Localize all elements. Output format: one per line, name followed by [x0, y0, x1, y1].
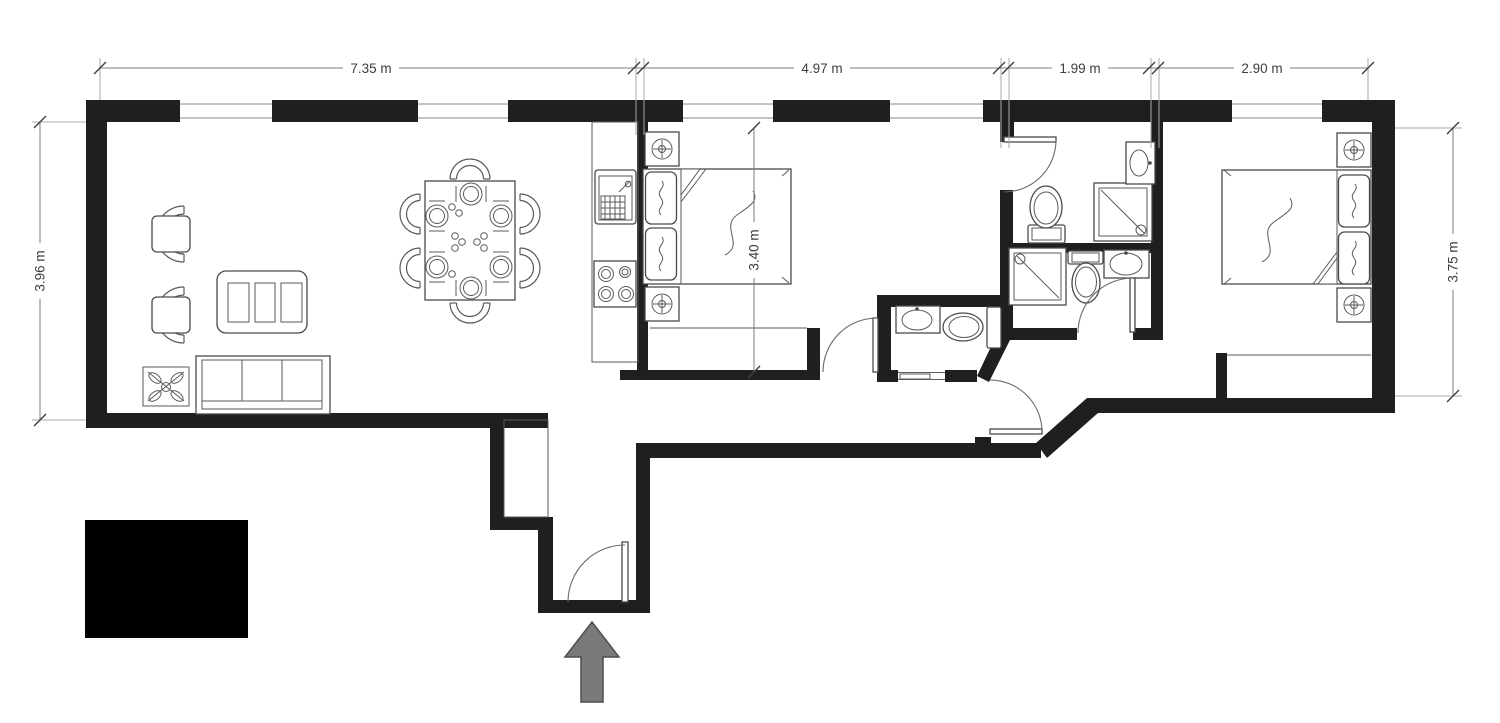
entrance-arrow-icon	[565, 622, 619, 702]
window	[418, 104, 508, 118]
living-room	[143, 159, 540, 414]
armchair	[152, 206, 190, 262]
bathroom-2	[1009, 248, 1149, 333]
kitchen-sink	[595, 170, 636, 224]
dim-top-3-label: 1.99 m	[1059, 61, 1100, 76]
bathroom-1-door	[1004, 137, 1056, 192]
stove	[594, 261, 636, 307]
bedroom-2	[1222, 133, 1371, 355]
plant	[143, 367, 189, 406]
window	[683, 104, 773, 118]
window	[1232, 104, 1322, 118]
floor-plan-canvas: 7.35 m 4.97 m 1.99 m 2.90 m 3.96 m 3.40 …	[0, 0, 1500, 723]
floor-plan-page: 7.35 m 4.97 m 1.99 m 2.90 m 3.96 m 3.40 …	[0, 0, 1500, 723]
coffee-table	[217, 271, 307, 333]
nightstand-lamp	[645, 132, 679, 166]
entry	[565, 542, 628, 702]
dim-top-1-label: 7.35 m	[350, 61, 391, 76]
shower	[1009, 248, 1066, 305]
dim-top-4-label: 2.90 m	[1241, 61, 1282, 76]
shaft	[504, 420, 548, 517]
nightstand-lamp	[1337, 288, 1371, 322]
nightstand-lamp	[1337, 133, 1371, 167]
double-bed	[643, 169, 791, 284]
hallway-door	[990, 380, 1042, 434]
bedroom-1-door	[823, 318, 878, 372]
sofa	[196, 356, 330, 414]
kitchen	[592, 122, 638, 362]
exterior-wall-right	[1372, 100, 1395, 413]
bathroom-1	[1004, 137, 1155, 243]
double-bed	[1222, 170, 1371, 284]
nightstand-lamp	[645, 287, 679, 321]
exterior-wall-left	[86, 100, 107, 428]
washbasin	[1126, 142, 1155, 184]
window	[180, 104, 272, 118]
dim-top-2-label: 4.97 m	[801, 61, 842, 76]
toilet	[1068, 251, 1103, 303]
window	[890, 104, 983, 118]
redaction-block	[85, 520, 248, 638]
dim-bedroom-label: 3.40 m	[747, 229, 762, 270]
toilet	[1028, 186, 1065, 243]
shower	[1094, 183, 1152, 241]
toilet	[943, 307, 1001, 348]
armchair	[152, 287, 190, 343]
sliding-door	[898, 370, 945, 382]
dining-set	[400, 159, 540, 323]
washbasin	[1104, 250, 1149, 278]
dim-left-label: 3.96 m	[33, 250, 48, 291]
washbasin	[896, 306, 940, 333]
kitchen-counter	[592, 122, 638, 362]
entry-door	[568, 542, 628, 602]
dim-right-label: 3.75 m	[1446, 241, 1461, 282]
